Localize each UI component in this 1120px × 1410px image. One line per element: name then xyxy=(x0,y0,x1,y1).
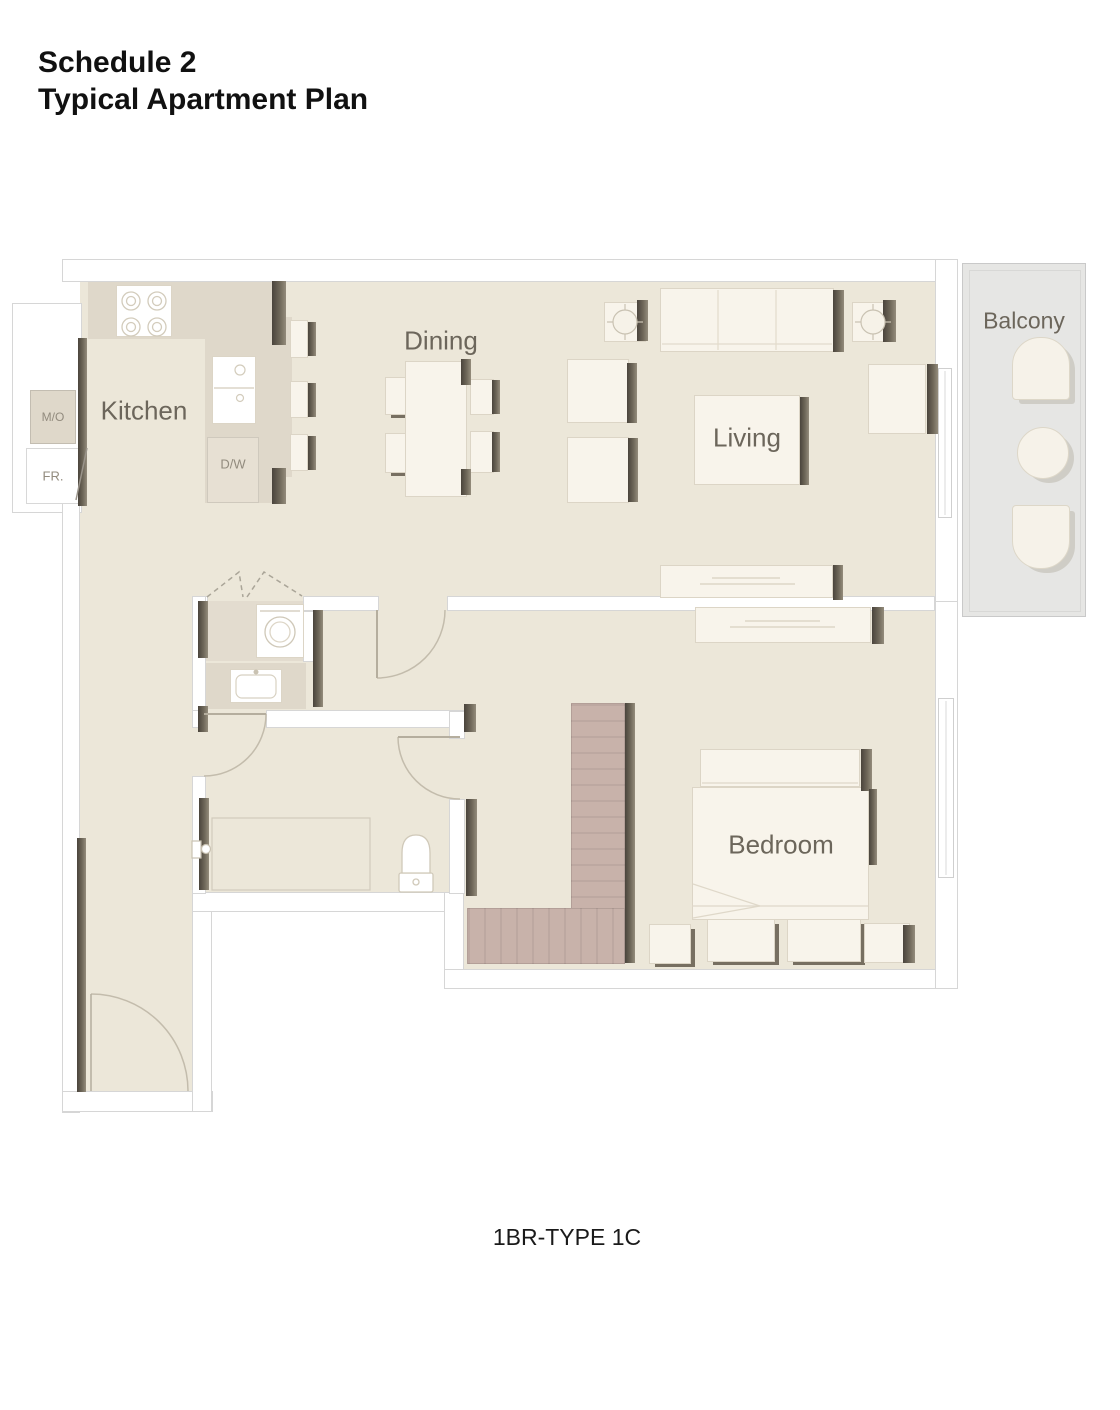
dark-wall xyxy=(198,706,208,732)
wall-bedroom-bottom xyxy=(444,969,958,989)
dark-wall xyxy=(903,925,915,963)
armchair xyxy=(567,437,629,503)
floor-plan-page: Schedule 2 Typical Apartment Plan xyxy=(0,0,1120,1410)
dining-table xyxy=(405,361,467,497)
vanity-sink xyxy=(230,669,282,703)
bed-headboard xyxy=(700,749,860,787)
dark-wall xyxy=(313,610,323,707)
tv-console-living xyxy=(660,565,833,598)
title-line-2: Typical Apartment Plan xyxy=(38,81,368,118)
balcony-chair-top xyxy=(1012,337,1070,400)
shadow-bar xyxy=(927,364,938,434)
dark-wall xyxy=(199,798,209,890)
plan-type-caption: 1BR-TYPE 1C xyxy=(427,1224,707,1251)
wall-bath-bottom xyxy=(192,892,464,912)
dark-wall xyxy=(625,703,635,963)
shadow-bar xyxy=(628,438,638,502)
wall-bath-top xyxy=(266,710,464,728)
wall-corridor-bottom xyxy=(62,1091,213,1112)
shadow-bar xyxy=(833,290,844,352)
shadow-bar xyxy=(861,749,872,791)
shadow-bar xyxy=(308,383,316,417)
room-label-bedroom: Bedroom xyxy=(728,830,834,861)
room-label-dining: Dining xyxy=(404,326,478,357)
dresser-bedroom xyxy=(695,607,871,643)
label-dishwasher: D/W xyxy=(220,457,245,472)
shadow-bar xyxy=(627,363,637,423)
washing-machine xyxy=(256,604,304,658)
room-label-balcony: Balcony xyxy=(983,308,1065,335)
wardrobe-horizontal xyxy=(467,908,625,964)
title-line-1: Schedule 2 xyxy=(38,44,368,81)
page-title: Schedule 2 Typical Apartment Plan xyxy=(38,44,368,118)
wall-divider-mid xyxy=(303,596,379,611)
balcony-chair-bottom xyxy=(1012,505,1070,569)
wall-top xyxy=(62,259,943,282)
dining-chair xyxy=(470,431,494,473)
dark-wall xyxy=(464,704,476,732)
armchair xyxy=(567,359,629,423)
wall-hall-vert-bottom xyxy=(449,799,465,894)
shadow-bar xyxy=(492,432,500,472)
dining-chair xyxy=(385,433,407,473)
shadow-bar xyxy=(461,359,471,385)
shadow-bar xyxy=(308,436,316,470)
nightstand xyxy=(649,924,691,964)
bar-stool xyxy=(290,381,308,418)
label-fridge: FR. xyxy=(43,469,64,484)
window-bedroom xyxy=(938,698,954,878)
stove xyxy=(116,285,172,337)
shadow-bar xyxy=(883,300,896,342)
dark-wall xyxy=(198,601,208,658)
dark-wall xyxy=(833,565,843,600)
bar-stool xyxy=(290,320,308,358)
dark-wall xyxy=(77,838,86,1092)
label-microwave-oven: M/O xyxy=(42,410,65,424)
window-living xyxy=(938,368,952,518)
sofa xyxy=(660,288,834,352)
dark-wall xyxy=(272,468,286,504)
shadow-bar xyxy=(492,380,500,414)
dark-wall xyxy=(78,338,87,506)
wall-hall-vert-top xyxy=(449,711,465,739)
kitchen-sink xyxy=(212,356,256,424)
shadow-bar xyxy=(308,322,316,356)
room-label-kitchen: Kitchen xyxy=(101,396,188,427)
shadow-bar xyxy=(800,397,809,485)
armchair xyxy=(868,364,926,434)
wall-corridor-right xyxy=(192,892,212,1112)
shadow-bar xyxy=(461,469,471,495)
shadow-bar xyxy=(637,300,648,341)
bed-bench xyxy=(707,919,775,962)
balcony-table xyxy=(1017,427,1069,479)
bed-bench xyxy=(787,919,861,962)
dark-wall xyxy=(466,799,477,896)
dark-wall xyxy=(272,281,286,345)
shadow-bar xyxy=(869,789,877,865)
bar-stool xyxy=(290,434,308,471)
dining-chair xyxy=(385,377,407,415)
dark-wall xyxy=(872,607,884,644)
room-label-living: Living xyxy=(713,423,781,454)
dining-chair xyxy=(470,379,494,415)
